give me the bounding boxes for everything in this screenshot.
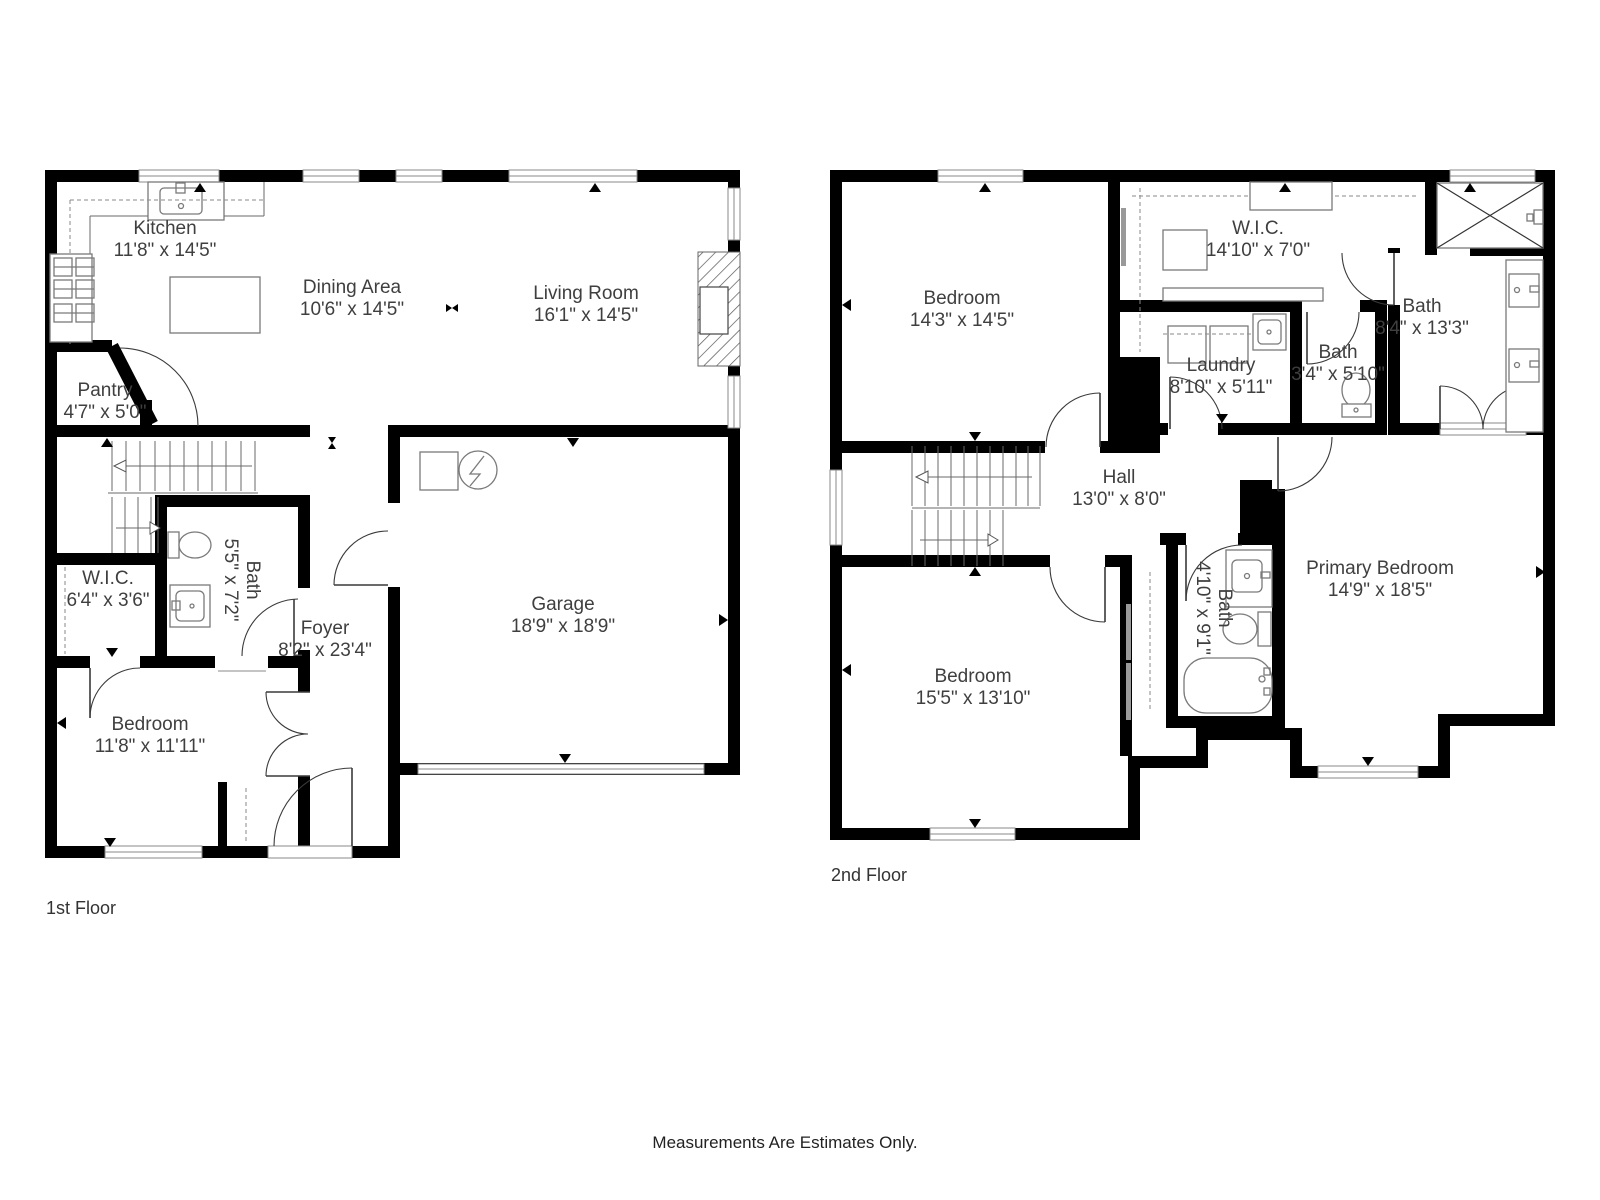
wic-shelf-band-icon: [1163, 288, 1323, 301]
svg-text:Pantry: Pantry: [78, 380, 133, 401]
room-label-primary: Primary Bedroom14'9" x 18'5": [1306, 558, 1454, 601]
furnace-icon: [420, 452, 458, 490]
window: [930, 828, 1015, 840]
svg-text:10'6" x 14'5": 10'6" x 14'5": [300, 299, 404, 320]
floor1-garage-fixtures: [420, 451, 497, 490]
svg-text:Living Room: Living Room: [533, 283, 639, 304]
shower-icon: [1437, 183, 1543, 248]
fireplace-icon: [698, 252, 740, 366]
window: [105, 846, 202, 858]
wic-door-icon: [1342, 253, 1394, 305]
laundry-sink-icon: [1253, 314, 1286, 350]
svg-text:14'10" x 7'0": 14'10" x 7'0": [1206, 240, 1310, 261]
svg-text:W.I.C.: W.I.C.: [82, 568, 134, 589]
svg-text:Bath: Bath: [1318, 342, 1357, 363]
bedroom-wic-door-icon: [90, 668, 140, 718]
window: [509, 170, 637, 182]
window: [728, 188, 740, 240]
svg-text:Bedroom: Bedroom: [111, 714, 188, 735]
garage-entry-door-icon: [334, 531, 388, 585]
kitchen-sink-icon: [148, 182, 224, 220]
room-label-wic1: W.I.C.6'4" x 3'6": [66, 568, 149, 611]
svg-text:8'10" x 5'11": 8'10" x 5'11": [1170, 377, 1273, 398]
svg-text:Bedroom: Bedroom: [934, 666, 1011, 687]
floor2-bath-main-fixtures: [1437, 183, 1543, 432]
wic-bench-icon: [1163, 230, 1207, 270]
room-label-dining: Dining Area10'6" x 14'5": [300, 277, 404, 320]
svg-text:Laundry: Laundry: [1187, 355, 1256, 376]
window: [303, 170, 359, 182]
svg-text:15'5" x 13'10": 15'5" x 13'10": [916, 688, 1031, 709]
room-label-kitchen: Kitchen11'8" x 14'5": [114, 218, 217, 261]
room-label-bedroom-b: Bedroom15'5" x 13'10": [916, 666, 1031, 709]
floor1-title: 1st Floor: [46, 898, 116, 918]
floor2-title: 2nd Floor: [831, 865, 907, 885]
svg-text:Kitchen: Kitchen: [133, 218, 196, 239]
bedroom-b-door-icon: [1050, 567, 1105, 622]
svg-text:11'8" x 11'11": 11'8" x 11'11": [95, 736, 206, 757]
toilet-icon: [168, 532, 211, 558]
room-label-wic2: W.I.C.14'10" x 7'0": [1206, 218, 1310, 261]
svg-text:5'5" x 7'2": 5'5" x 7'2": [220, 538, 241, 621]
room-label-bedroom1: Bedroom11'8" x 11'11": [95, 714, 206, 757]
window: [830, 470, 842, 545]
svg-text:Bath: Bath: [1214, 588, 1235, 627]
svg-text:6'4" x 3'6": 6'4" x 3'6": [66, 590, 149, 611]
bathroom-sink-icon: [170, 585, 210, 627]
floor2-stairs-icon: [912, 446, 1040, 566]
window: [396, 170, 442, 182]
room-label-living: Living Room16'1" x 14'5": [533, 283, 639, 326]
svg-text:Garage: Garage: [531, 594, 594, 615]
wic-shelf-icon: [1250, 182, 1332, 210]
svg-text:Primary Bedroom: Primary Bedroom: [1306, 558, 1454, 579]
svg-text:Foyer: Foyer: [301, 618, 350, 639]
svg-text:13'0" x 8'0": 13'0" x 8'0": [1072, 489, 1166, 510]
front-door-icon: [274, 768, 352, 846]
primary-door-icon: [1278, 437, 1332, 491]
bedroom-tl-door-icon: [1046, 393, 1100, 447]
floorplan-canvas: Kitchen11'8" x 14'5" Dining Area10'6" x …: [0, 0, 1600, 1200]
window: [1318, 766, 1418, 778]
svg-text:Bath: Bath: [1402, 296, 1441, 317]
svg-text:16'1" x 14'5": 16'1" x 14'5": [534, 305, 638, 326]
svg-text:18'9" x 18'9": 18'9" x 18'9": [511, 616, 615, 637]
room-label-foyer: Foyer8'2" x 23'4": [278, 618, 372, 661]
water-heater-icon: [459, 451, 497, 489]
floor1-plan: Kitchen11'8" x 14'5" Dining Area10'6" x …: [45, 170, 740, 918]
svg-text:Bath: Bath: [242, 560, 263, 599]
floor1-kitchen-fixtures: [50, 182, 264, 344]
svg-text:14'3" x 14'5": 14'3" x 14'5": [910, 310, 1014, 331]
floor1-labels: Kitchen11'8" x 14'5" Dining Area10'6" x …: [63, 218, 638, 757]
svg-text:11'8" x 14'5": 11'8" x 14'5": [114, 240, 217, 261]
svg-text:8'4" x 13'3": 8'4" x 13'3": [1375, 318, 1469, 339]
svg-text:Dining Area: Dining Area: [303, 277, 402, 298]
svg-text:W.I.C.: W.I.C.: [1232, 218, 1284, 239]
stove-icon: [50, 254, 94, 342]
svg-text:8'2" x 23'4": 8'2" x 23'4": [278, 640, 372, 661]
window: [139, 170, 219, 182]
room-label-garage: Garage18'9" x 18'9": [511, 594, 615, 637]
window: [728, 376, 740, 428]
svg-text:4'10" x 9'1": 4'10" x 9'1": [1192, 561, 1213, 655]
room-label-bedroom-tl: Bedroom14'3" x 14'5": [910, 288, 1014, 331]
svg-text:4'7" x 5'0": 4'7" x 5'0": [63, 402, 146, 423]
svg-text:Hall: Hall: [1103, 467, 1136, 488]
room-label-bath-small: Bath3'4" x 5'10": [1291, 342, 1385, 385]
window: [1450, 170, 1535, 182]
window: [938, 170, 1023, 182]
room-label-bath1: Bath5'5" x 7'2": [220, 538, 263, 621]
bathtub-icon: [1184, 658, 1272, 713]
svg-text:3'4" x 5'10": 3'4" x 5'10": [1291, 364, 1385, 385]
kitchen-island-icon: [170, 277, 260, 333]
floor2-plan: Bedroom14'3" x 14'5" W.I.C.14'10" x 7'0"…: [830, 170, 1555, 885]
room-label-hall: Hall13'0" x 8'0": [1072, 467, 1166, 510]
svg-text:14'9" x 18'5": 14'9" x 18'5": [1328, 580, 1432, 601]
svg-text:Bedroom: Bedroom: [923, 288, 1000, 309]
disclaimer-text: Measurements Are Estimates Only.: [652, 1133, 917, 1152]
garage-door: [418, 764, 704, 774]
